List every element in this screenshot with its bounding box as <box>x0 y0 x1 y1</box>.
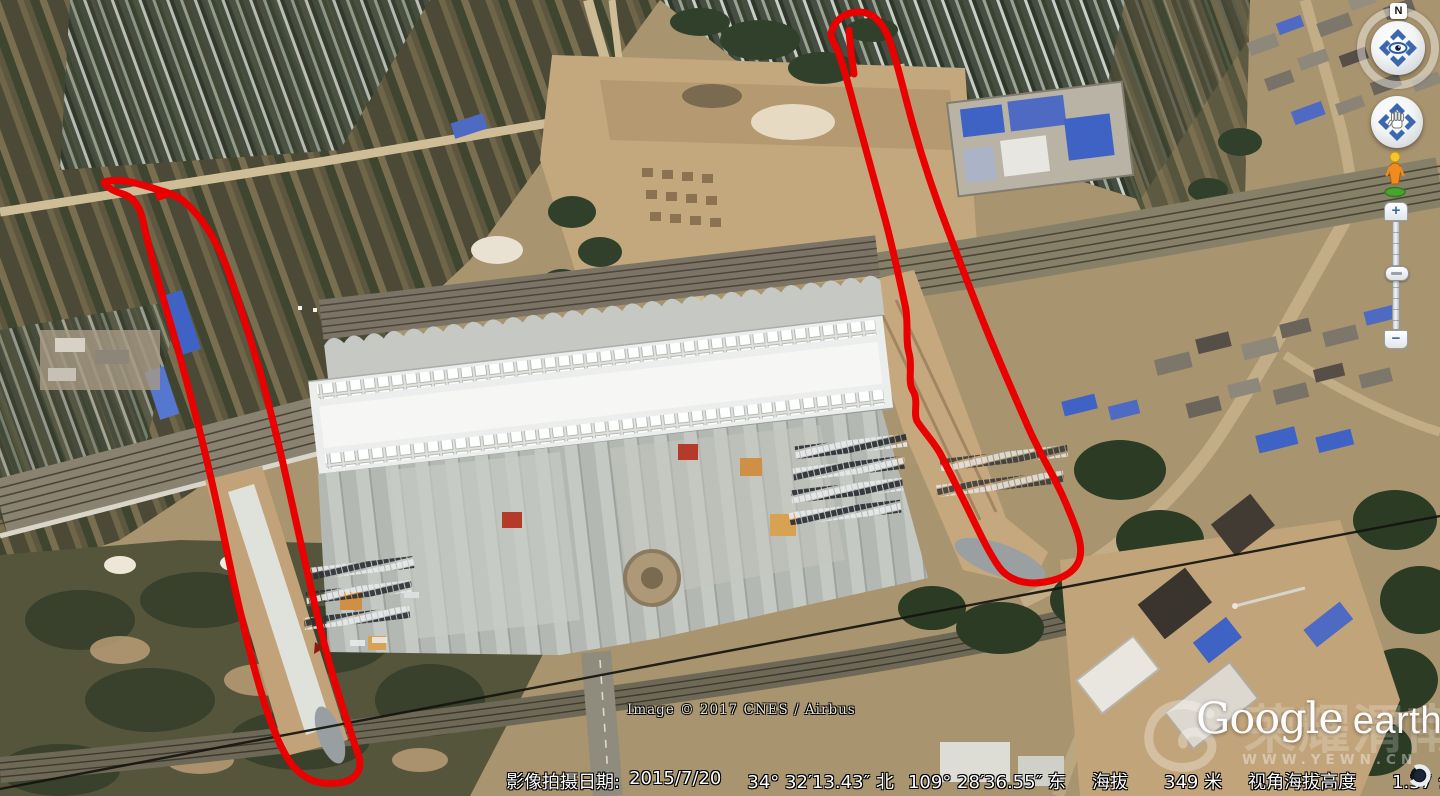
satellite-imagery[interactable] <box>0 0 1440 796</box>
streaming-indicator-icon <box>1406 762 1433 789</box>
imagery-attribution: Image © 2017 CNES / Airbus <box>627 702 856 718</box>
imagery-date-value: 2015/7/20 <box>629 768 721 794</box>
pegman-street-view-icon[interactable] <box>1383 150 1407 198</box>
eye-icon <box>1390 43 1407 53</box>
walled-compound <box>947 82 1133 197</box>
north-indicator[interactable]: N <box>1390 3 1407 19</box>
look-ball[interactable] <box>1371 21 1425 75</box>
zoom-control[interactable]: + − <box>1384 202 1408 350</box>
google-earth-logo: Google earth <box>1196 694 1440 744</box>
imagery-date-label: 影像拍摄日期: <box>506 768 620 794</box>
move-joystick[interactable] <box>1371 96 1423 148</box>
move-down-chevron-icon <box>1389 130 1405 142</box>
zoom-out-button[interactable]: − <box>1384 330 1408 349</box>
google-earth-window: Image © 2017 CNES / Airbus Google earth … <box>0 0 1440 796</box>
status-bar: 影像拍摄日期: 2015/7/20 34° 32′13.43″ 北 109° 2… <box>0 768 1440 794</box>
logo-earth-text: earth <box>1353 700 1440 743</box>
move-right-chevron-icon <box>1405 114 1417 130</box>
zoom-slider-thumb[interactable] <box>1385 266 1409 281</box>
elevation-value: 349 米 <box>1164 768 1222 794</box>
hand-icon <box>1387 112 1403 129</box>
zoom-in-button[interactable]: + <box>1384 202 1408 221</box>
move-ball[interactable] <box>1371 96 1423 148</box>
look-joystick[interactable]: N <box>1357 7 1439 89</box>
zoom-slider-track[interactable] <box>1392 221 1400 330</box>
logo-google-text: Google <box>1196 694 1343 744</box>
eye-altitude-label: 视角海拔高度 <box>1248 768 1356 794</box>
elevation-label: 海拔 <box>1092 768 1128 794</box>
look-down-chevron-icon <box>1390 56 1406 68</box>
longitude-value: 109° 28′36.55″ 东 <box>908 768 1066 794</box>
look-up-chevron-icon <box>1390 29 1406 41</box>
move-left-chevron-icon <box>1378 114 1390 130</box>
latitude-value: 34° 32′13.43″ 北 <box>747 768 894 794</box>
